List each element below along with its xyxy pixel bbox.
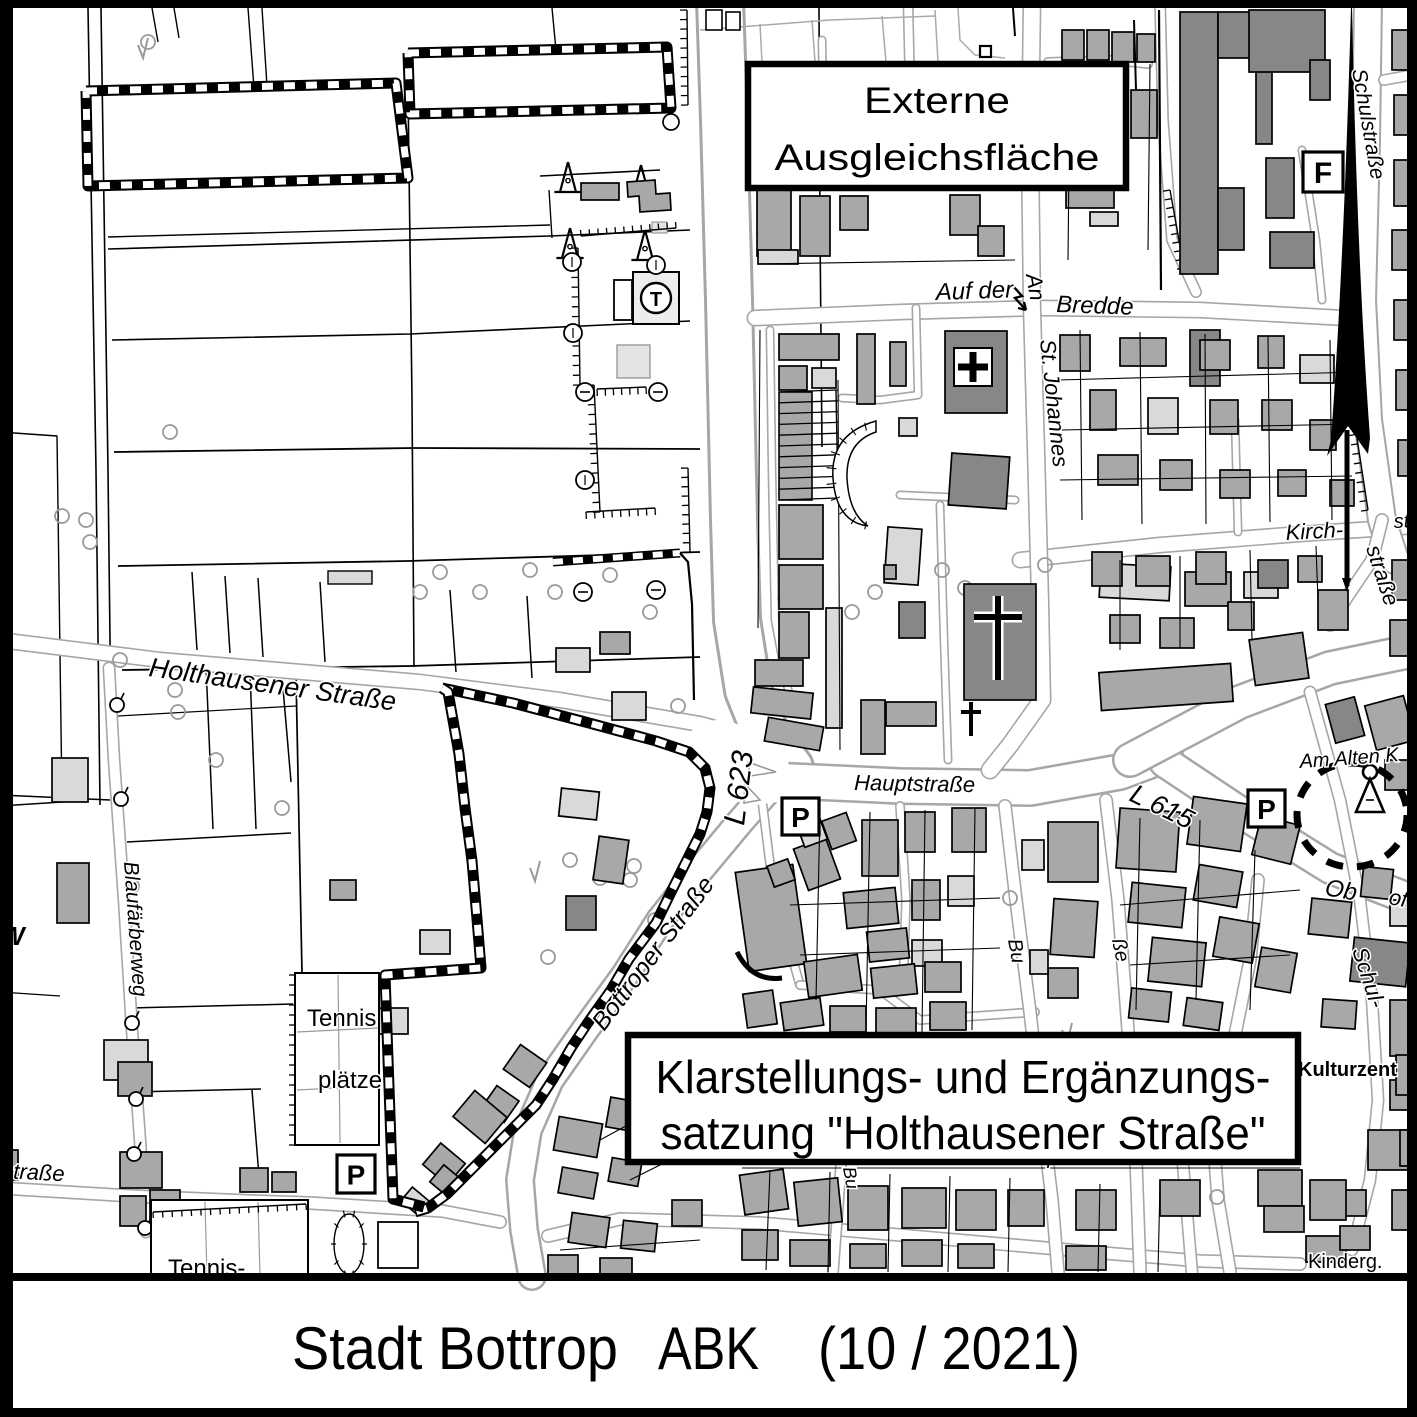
svg-text:Tennis: Tennis: [307, 1005, 376, 1032]
svg-text:Externe: Externe: [864, 80, 1010, 121]
svg-text:Bu: Bu: [1003, 937, 1029, 965]
svg-text:Ob: Ob: [1323, 874, 1359, 906]
svg-text:(10 / 2021): (10 / 2021): [818, 1315, 1080, 1382]
svg-text:ABK: ABK: [658, 1315, 759, 1382]
svg-text:Kinderg.: Kinderg.: [1308, 1251, 1383, 1273]
svg-text:Stadt Bottrop: Stadt Bottrop: [292, 1315, 618, 1382]
svg-text:Auf der: Auf der: [933, 276, 1014, 306]
svg-text:Klarstellungs- und Ergänzungs-: Klarstellungs- und Ergänzungs-: [656, 1051, 1271, 1103]
svg-text:P: P: [347, 1160, 366, 1191]
svg-text:Kirch-: Kirch-: [1285, 517, 1344, 545]
svg-text:plätze: plätze: [318, 1067, 382, 1094]
svg-text:Kulturzent: Kulturzent: [1298, 1059, 1397, 1081]
svg-text:An: An: [1021, 270, 1051, 303]
svg-text:Bu: Bu: [839, 1165, 863, 1190]
svg-text:Hauptstraße: Hauptstraße: [854, 770, 975, 797]
svg-text:Bredde: Bredde: [1056, 291, 1134, 321]
svg-text:satzung "Holthausener Straße": satzung "Holthausener Straße": [661, 1107, 1266, 1159]
svg-text:P: P: [791, 802, 810, 833]
svg-text:F: F: [1314, 157, 1332, 190]
svg-text:P: P: [1257, 794, 1276, 825]
svg-text:Ausgleichsfläche: Ausgleichsfläche: [775, 137, 1100, 178]
svg-text:T: T: [650, 289, 662, 311]
